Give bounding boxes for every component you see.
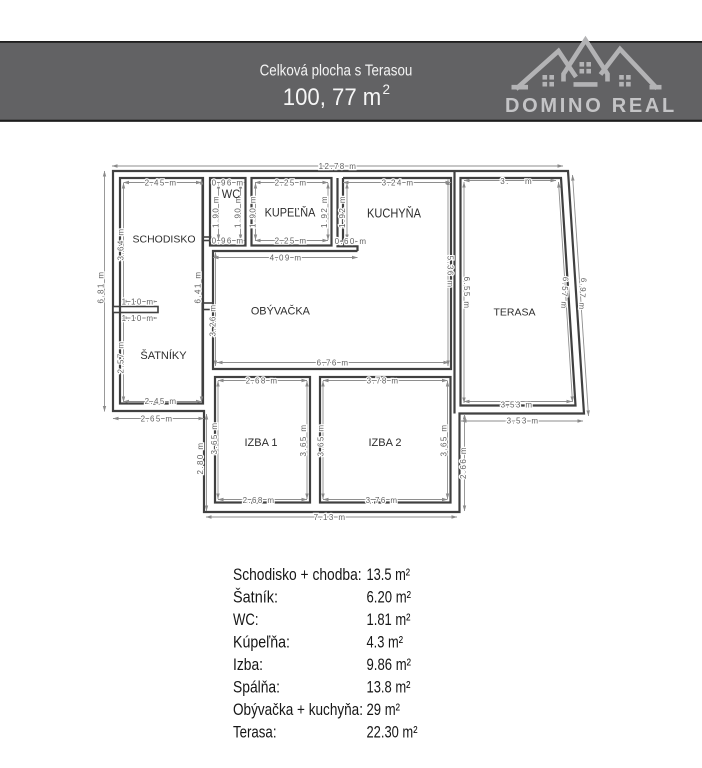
svg-text:6.57 m: 6.57 m <box>559 276 570 309</box>
svg-text:3.78 m: 3.78 m <box>367 377 400 386</box>
svg-text:6.41 m: 6.41 m <box>194 271 203 304</box>
svg-text:6.97 m: 6.97 m <box>577 277 588 310</box>
svg-text:13.8 m²: 13.8 m² <box>367 678 411 697</box>
svg-text:3.65 m: 3.65 m <box>299 424 308 457</box>
svg-text:IZBA 1: IZBA 1 <box>244 437 277 449</box>
svg-text:OBÝVAČKA: OBÝVAČKA <box>251 305 311 318</box>
svg-text:KUCHYŇA: KUCHYŇA <box>367 206 421 221</box>
svg-text:3.65 m: 3.65 m <box>317 424 326 457</box>
svg-text:0.60 m: 0.60 m <box>335 237 368 246</box>
svg-text:7.13 m: 7.13 m <box>314 513 347 522</box>
svg-text:6.20 m²: 6.20 m² <box>367 588 412 607</box>
svg-text:9.86 m²: 9.86 m² <box>367 655 412 674</box>
svg-text:3.24 m: 3.24 m <box>382 179 415 188</box>
svg-text:Kúpeľňa:: Kúpeľňa: <box>233 633 290 652</box>
svg-text:Spálňa:: Spálňa: <box>233 678 280 697</box>
svg-text:m: m <box>525 177 533 186</box>
svg-text:Obývačka + kuchyňa:: Obývačka + kuchyňa: <box>233 700 363 719</box>
svg-text:2: 2 <box>383 82 391 97</box>
svg-text:Šatník:: Šatník: <box>233 588 278 607</box>
svg-text:1.81 m²: 1.81 m² <box>367 610 411 629</box>
svg-text:KUPEĽŇA: KUPEĽŇA <box>265 205 316 220</box>
svg-text:ŠATNÍKY: ŠATNÍKY <box>140 349 187 362</box>
svg-text:13.5 m²: 13.5 m² <box>367 565 411 584</box>
svg-text:2.65 m: 2.65 m <box>141 415 174 424</box>
svg-text:3.53 m: 3.53 m <box>501 401 534 410</box>
svg-text:WC:: WC: <box>233 610 259 629</box>
svg-text:Schodisko + chodba:: Schodisko + chodba: <box>233 565 362 584</box>
svg-text:2.25 m: 2.25 m <box>275 237 308 246</box>
svg-text:1.92 m: 1.92 m <box>320 195 329 228</box>
svg-text:WC: WC <box>222 187 240 201</box>
svg-text:5.36 m: 5.36 m <box>446 256 455 289</box>
svg-text:3.65 m: 3.65 m <box>210 422 219 455</box>
svg-text:3.26 m: 3.26 m <box>209 304 218 337</box>
svg-text:0.96 m: 0.96 m <box>212 237 245 246</box>
svg-text:3.: 3. <box>500 177 509 186</box>
svg-text:2.80 m: 2.80 m <box>196 442 205 475</box>
svg-text:100, 77 m: 100, 77 m <box>283 84 382 111</box>
svg-text:TERASA: TERASA <box>493 307 535 319</box>
svg-text:2.68 m: 2.68 m <box>246 377 279 386</box>
svg-text:22.30 m²: 22.30 m² <box>367 723 418 742</box>
svg-text:Izba:: Izba: <box>233 655 263 674</box>
svg-text:1.90 m: 1.90 m <box>212 195 221 228</box>
svg-text:29 m²: 29 m² <box>367 700 401 719</box>
svg-text:1.92 m: 1.92 m <box>338 195 347 228</box>
svg-text:Terasa:: Terasa: <box>233 723 277 742</box>
svg-text:2.66 m: 2.66 m <box>459 446 468 479</box>
svg-text:1.10 m: 1.10 m <box>122 298 155 307</box>
svg-text:3.53 m: 3.53 m <box>507 417 540 426</box>
svg-text:3.76 m: 3.76 m <box>366 496 399 505</box>
svg-text:SCHODISKO: SCHODISKO <box>132 233 195 245</box>
svg-text:6.55 m: 6.55 m <box>462 277 471 310</box>
svg-text:2.45 m: 2.45 m <box>145 179 178 188</box>
svg-text:6.81 m: 6.81 m <box>97 271 106 304</box>
svg-text:2.45 m: 2.45 m <box>145 397 178 406</box>
svg-text:2.57 m: 2.57 m <box>117 341 126 374</box>
svg-text:1.90 m: 1.90 m <box>249 195 258 228</box>
svg-text:3.65 m: 3.65 m <box>440 424 449 457</box>
svg-text:4.3 m²: 4.3 m² <box>367 633 404 652</box>
svg-text:2.68 m: 2.68 m <box>243 496 276 505</box>
svg-text:1.10 m: 1.10 m <box>122 314 155 323</box>
svg-text:4.09 m: 4.09 m <box>270 254 303 263</box>
svg-text:Celková plocha s Terasou: Celková plocha s Terasou <box>260 63 413 80</box>
svg-text:2.25 m: 2.25 m <box>275 179 308 188</box>
svg-text:12.78 m: 12.78 m <box>319 162 358 171</box>
svg-text:3.64 m: 3.64 m <box>117 228 126 261</box>
svg-text:IZBA 2: IZBA 2 <box>368 437 401 449</box>
svg-text:6.76 m: 6.76 m <box>317 359 350 368</box>
svg-text:DOMINO REAL: DOMINO REAL <box>505 95 677 117</box>
